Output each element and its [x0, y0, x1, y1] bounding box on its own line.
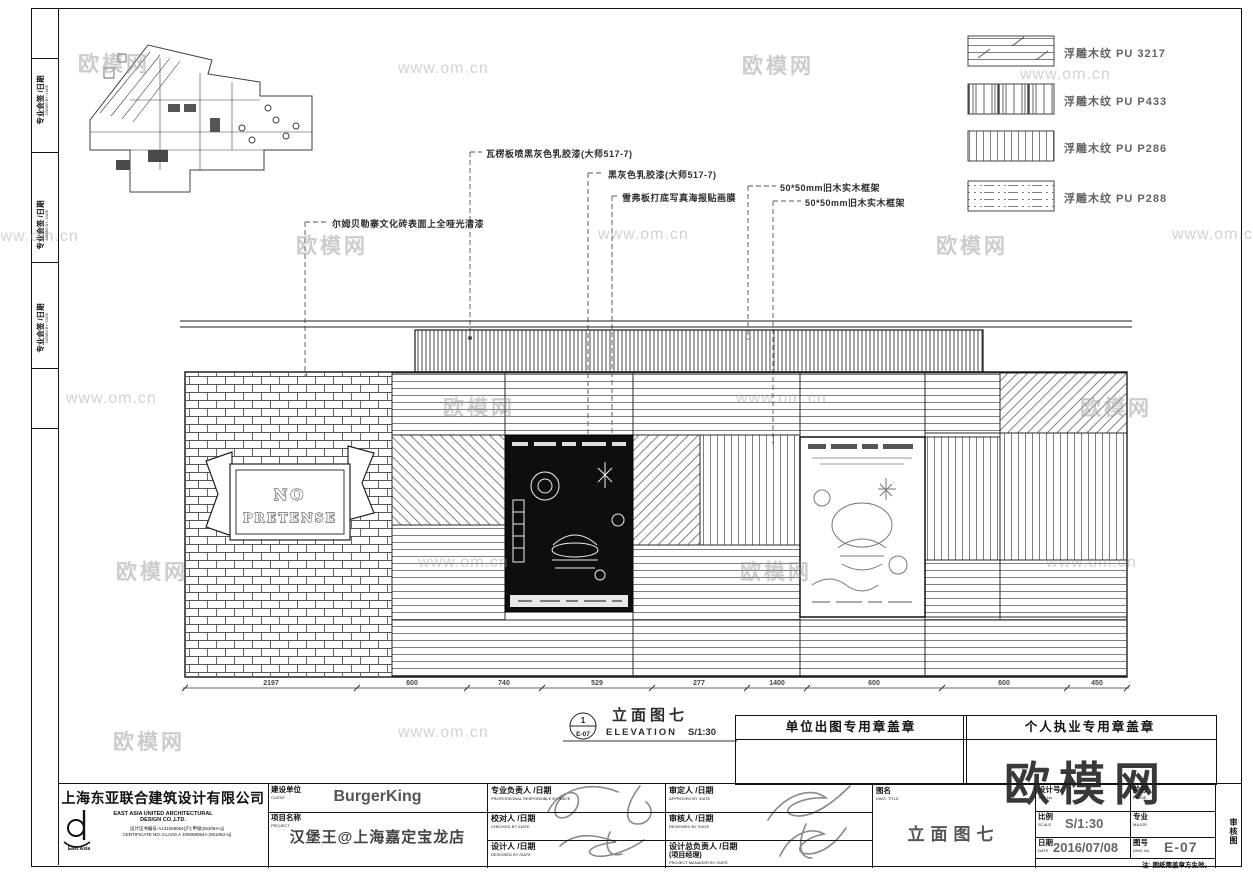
dimension-label: 277 [693, 680, 705, 687]
role-cell: 设计总负责人 /日期 (项目经理) PROJECT MANAGER BY /DA… [665, 840, 872, 868]
legend-item-label: 浮雕木纹 PU 3217 [1064, 45, 1166, 61]
field-label: 专业 [1133, 813, 1148, 822]
unit-stamp-box: 单位出图专用章盖章 [735, 715, 967, 785]
annotation-frame-2: 50*50mm旧木实木框架 [805, 196, 905, 209]
field-date: 日期 DATE 2016/07/08 [1035, 837, 1130, 858]
role-cell: 设计人 /日期 DESIGNED BY /DATE [487, 840, 665, 868]
personal-stamp-title: 个人执业专用章盖章 [964, 716, 1216, 740]
project-name: 汉堡王@上海嘉定宝龙店 [268, 826, 487, 847]
role-cell: 审定人 /日期 APPROVED BY /DATE [665, 784, 872, 812]
field-phase: 阶段 PHASE [1130, 784, 1215, 811]
dimension-label: 600 [868, 680, 880, 687]
field-major: 专业 MAJOR [1130, 811, 1215, 837]
ref-sheet: E-07 [576, 731, 590, 738]
legend-swatches [968, 36, 1054, 211]
role-label-en: DESIGNED BY /DATE [491, 852, 535, 857]
dimension-label: 2197 [263, 680, 279, 687]
company-cell: 上海东亚联合建筑设计有限公司 EAST ASIA UNITED ARCHITEC… [58, 784, 268, 868]
field-label: 阶段 [1133, 786, 1148, 795]
dimension-label: 600 [406, 680, 418, 687]
annotation-poster: 雪弗板打底写真海报贴画膜 [622, 191, 736, 204]
company-cert-en: CERTIFICATE NO.:CLASS A 100069064A (0610… [58, 832, 268, 837]
role-label: 审定人 /日期 [669, 787, 713, 796]
field-label-en: MAJOR [1133, 822, 1148, 827]
unit-stamp-title: 单位出图专用章盖章 [736, 716, 966, 740]
legend-item-label: 浮雕木纹 PU P433 [1064, 93, 1167, 109]
ref-number: 1 [581, 716, 586, 725]
field-job-no: 设计号 JOB No. [1035, 784, 1130, 811]
company-logo-text: East Asia [60, 846, 98, 852]
legend-item-label: 浮雕木纹 PU P288 [1064, 190, 1167, 206]
dark-mural [505, 435, 633, 612]
role-cell: 校对人 /日期 CHECKED BY /DATE [487, 812, 665, 840]
client-cell: 建设单位 CLIENT BurgerKing [268, 784, 487, 812]
banner-text-2: PRETENSE [243, 510, 337, 525]
project-cell: 项目名称 PROJECT 汉堡王@上海嘉定宝龙店 [268, 812, 487, 868]
field-label: 设计号 [1038, 786, 1061, 795]
top-band [180, 321, 1132, 372]
client-label-en: CLIENT [271, 795, 301, 800]
role-label: 设计人 /日期 [491, 843, 535, 852]
client-label: 建设单位 [271, 786, 301, 795]
title-block: 上海东亚联合建筑设计有限公司 EAST ASIA UNITED ARCHITEC… [58, 783, 1242, 868]
role-label: 校对人 /日期 [491, 815, 535, 824]
field-value: S/1:30 [1065, 816, 1103, 831]
role-cell: 专业负责人 /日期 PROFESSIONAL RESPONSIBLE BY /D… [487, 784, 665, 812]
dimension-string: 2197 600 740 529 277 1400 600 600 450 [182, 680, 1130, 691]
role-label-2: (项目经理) [669, 852, 737, 861]
banner-text-1: NO [274, 486, 307, 504]
dimension-label: 600 [998, 680, 1010, 687]
company-name-cn: 上海东亚联合建筑设计有限公司 [58, 788, 268, 808]
personal-stamp-box: 个人执业专用章盖章 [963, 715, 1217, 785]
field-label: 日期 [1038, 839, 1053, 848]
dimension-label: 529 [591, 680, 603, 687]
role-cell: 审核人 /日期 REVIEWED BY /DATE [665, 812, 872, 840]
field-scale: 比例 SCALE S/1:30 [1035, 811, 1130, 837]
effectiveness-note: 注: 图纸需盖章方生效。 [1035, 859, 1211, 869]
legend-item-label: 浮雕木纹 PU P286 [1064, 140, 1167, 156]
key-plan [90, 45, 312, 192]
wood-panels [392, 373, 1127, 676]
role-label-en: PROFESSIONAL RESPONSIBLE BY /DATE [491, 796, 570, 801]
dwg-title-value: 立面图七 [872, 820, 1035, 845]
project-label-en: PROJECT [271, 823, 301, 828]
field-label-en: DWG No. [1133, 848, 1150, 853]
role-label: 审核人 /日期 [669, 815, 713, 824]
field-label-en: PHASE [1133, 795, 1148, 800]
role-label-en: PROJECT MANAGER BY /DATE [669, 860, 737, 865]
project-label: 项目名称 [271, 814, 301, 823]
dimension-label: 1400 [769, 680, 785, 687]
field-label-en: DATE [1038, 848, 1053, 853]
dwg-title-cell: 图名 DWG. TITLE 立面图七 [872, 784, 1035, 868]
annotation-paint: 黑灰色乳胶漆(大师517-7) [608, 168, 717, 181]
field-value: E-07 [1164, 839, 1198, 855]
dimension-label: 740 [498, 680, 510, 687]
drawing-sheet: 专业会签 /日期 SIGNED BY / DATE 专业会签 /日期 SIGNE… [0, 0, 1253, 875]
company-name-en2: DESIGN CO.,LTD. [58, 817, 268, 823]
elevation-title: 立面图七 [612, 704, 688, 725]
dwg-title-label-en: DWG. TITLE [876, 796, 899, 801]
field-dwg-no: 图号 DWG No. E-07 [1130, 837, 1215, 858]
annotation-brick: 尔姆贝勒寨文化砖表面上全哑光清漆 [332, 217, 484, 230]
field-label-en: SCALE [1038, 822, 1053, 827]
annotation-frame-1: 50*50mm旧木实木框架 [780, 181, 880, 194]
role-label-en: REVIEWED BY /DATE [669, 824, 713, 829]
elevation-scale: S/1:30 [688, 727, 716, 738]
role-label: 专业负责人 /日期 [491, 787, 570, 796]
field-value: 2016/07/08 [1053, 840, 1118, 855]
field-label: 比例 [1038, 813, 1053, 822]
elevation-title-en: ELEVATION [606, 727, 677, 738]
dimension-label: 450 [1091, 680, 1103, 687]
role-label-en: APPROVED BY /DATE [669, 796, 713, 801]
light-mural [800, 437, 925, 617]
side-vertical-label: 审核图 [1221, 818, 1239, 845]
annotation-corrugated: 瓦楞板喷黑灰色乳胶漆(大师517-7) [486, 147, 633, 160]
field-label-en: JOB No. [1038, 795, 1061, 800]
role-label: 设计总负责人 /日期 [669, 843, 737, 852]
field-label: 图号 [1133, 839, 1150, 848]
role-label-en: CHECKED BY /DATE [491, 824, 535, 829]
dwg-title-label: 图名 [876, 787, 899, 796]
